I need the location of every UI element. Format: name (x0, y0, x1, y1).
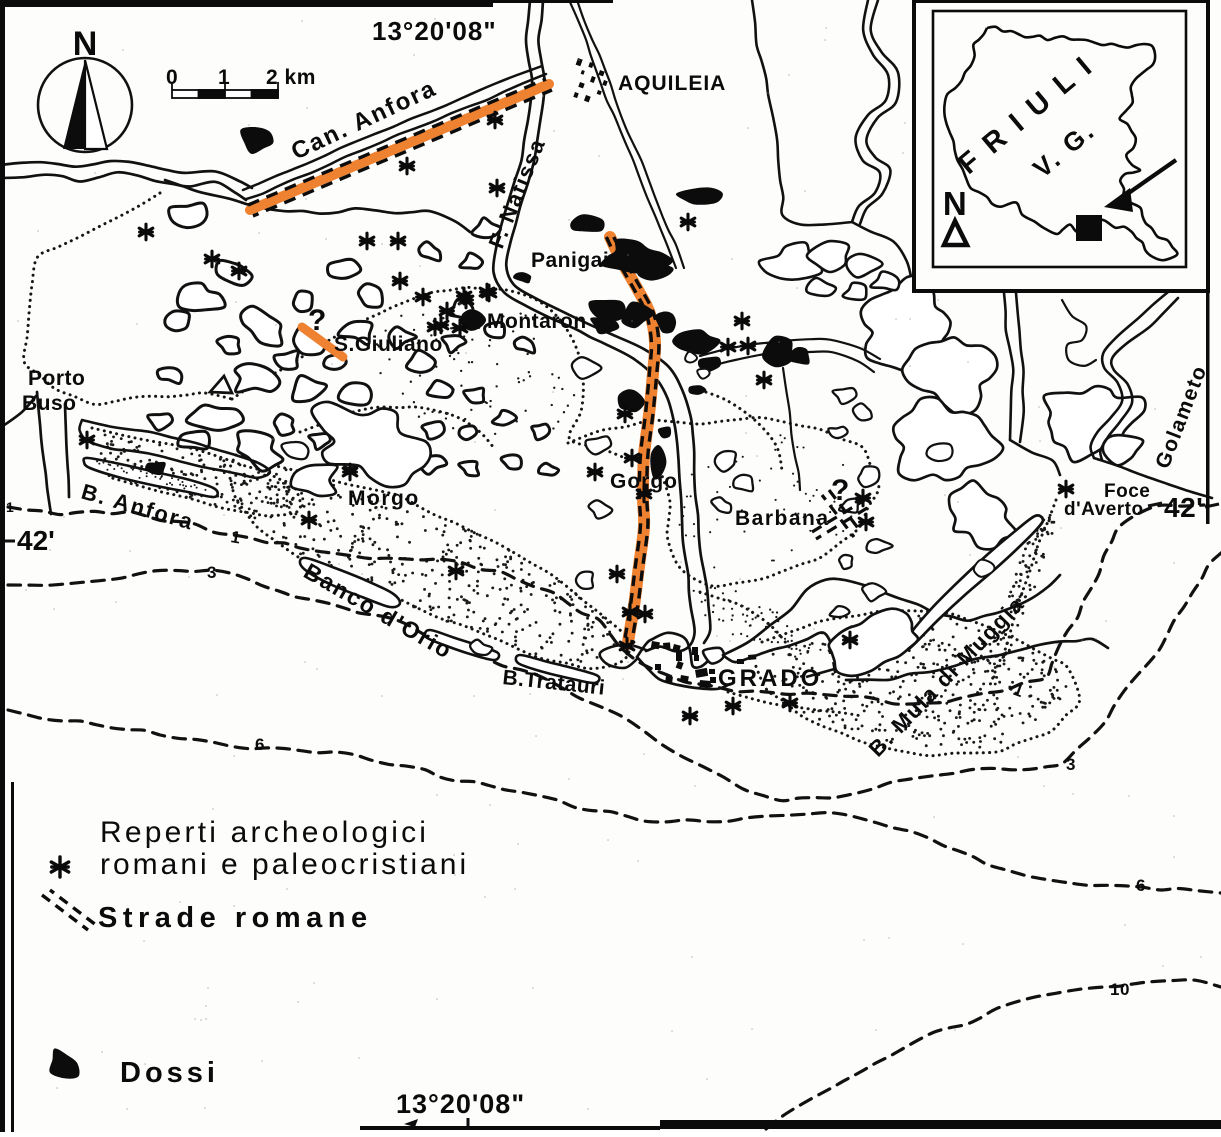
svg-text:Panigai: Panigai (531, 249, 609, 272)
svg-text:Buso: Buso (22, 392, 77, 415)
svg-text:3: 3 (1066, 755, 1076, 774)
svg-text:13°20'08": 13°20'08" (396, 1089, 525, 1119)
svg-text:3: 3 (207, 563, 217, 582)
svg-text:6: 6 (255, 735, 265, 754)
svg-text:d'Averto: d'Averto (1064, 499, 1144, 520)
svg-text:Porto: Porto (28, 367, 85, 390)
svg-text:Montaron: Montaron (487, 310, 587, 333)
svg-text:romani e paleocristiani: romani e paleocristiani (100, 848, 469, 881)
svg-text:13°20'08": 13°20'08" (372, 16, 497, 46)
svg-text:10: 10 (1110, 980, 1130, 999)
svg-text:?: ? (831, 474, 850, 507)
svg-text:1: 1 (218, 66, 230, 89)
svg-text:Gorgo: Gorgo (610, 470, 678, 493)
svg-text:42': 42' (17, 525, 55, 556)
svg-text:2 km: 2 km (266, 66, 316, 89)
svg-text:Strade romane: Strade romane (98, 902, 373, 934)
svg-text:1: 1 (6, 499, 14, 515)
svg-text:42': 42' (1164, 492, 1203, 523)
svg-text:0: 0 (166, 66, 178, 89)
svg-text:Barbana: Barbana (735, 507, 830, 530)
svg-text:GRADO: GRADO (718, 665, 822, 692)
svg-text:AQUILEIA: AQUILEIA (618, 72, 726, 95)
svg-text:Morgo: Morgo (348, 487, 420, 510)
svg-text:S.Giuliano: S.Giuliano (334, 333, 443, 356)
svg-text:6: 6 (1136, 876, 1146, 895)
svg-text:Dossi: Dossi (120, 1057, 219, 1089)
svg-text:?: ? (308, 304, 327, 337)
svg-text:Reperti archeologici: Reperti archeologici (100, 816, 429, 849)
